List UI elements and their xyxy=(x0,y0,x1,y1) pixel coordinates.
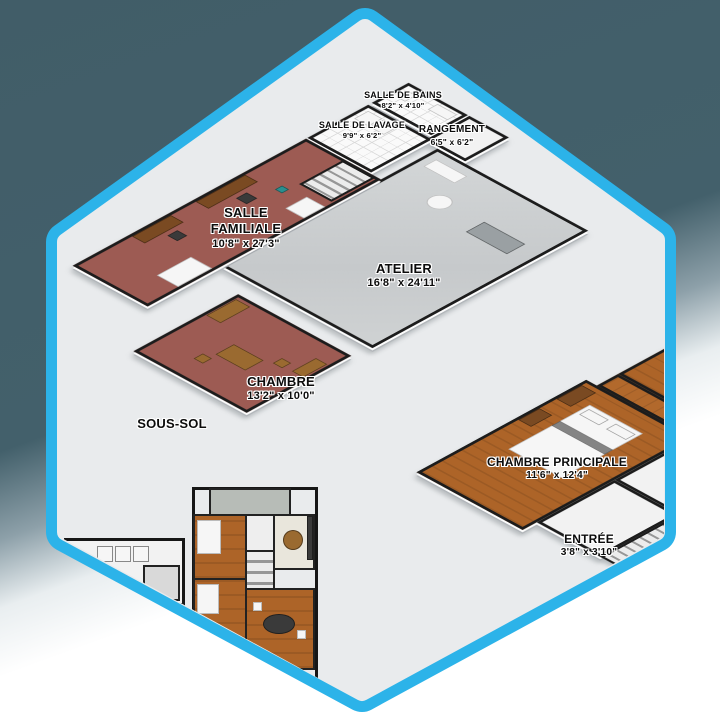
staircase-icon xyxy=(245,550,275,590)
room-name: SALLE DE BAINS xyxy=(364,90,442,101)
room-dims: 3'8" x 3'10" xyxy=(561,547,618,560)
level-label-sous-sol: SOUS-SOL xyxy=(137,416,207,432)
room-label-rangement: RANGEMENT 6'5" x 6'2" xyxy=(419,124,485,147)
room-label-salle-familiale: SALLE FAMILIALE 10'8" x 27'3" xyxy=(212,205,279,251)
oval-table-icon xyxy=(263,614,295,634)
room-dims: 13'2" x 10'0" xyxy=(247,390,315,404)
room-label-atelier: ATELIER 16'8" x 24'11" xyxy=(367,261,440,291)
room-name: SALLE DE LAVAGE xyxy=(319,120,405,131)
washer-icon xyxy=(115,546,131,562)
dining-table-icon xyxy=(283,530,303,550)
room-dims: 8'2" x 4'10" xyxy=(364,101,442,111)
room-dims: 9'9" x 6'2" xyxy=(319,131,405,141)
deck xyxy=(209,488,291,516)
counter-icon xyxy=(307,516,313,560)
room-dims: 11'6" x 12'4" xyxy=(487,470,627,483)
floorplan-image: SALLE DE BAINS 8'2" x 4'10" SALLE DE LAV… xyxy=(0,0,720,720)
room-label-entree: ENTRÉE 3'8" x 3'10" xyxy=(561,532,618,560)
chair-icon xyxy=(253,602,262,611)
room-name: RANGEMENT xyxy=(419,124,485,137)
room-label-salle-de-lavage: SALLE DE LAVAGE 9'9" x 6'2" xyxy=(319,120,405,141)
level-name: SOUS-SOL xyxy=(137,416,207,432)
room-bathroom xyxy=(245,514,275,552)
bed-icon xyxy=(197,584,219,614)
room-label-salle-de-bains: SALLE DE BAINS 8'2" x 4'10" xyxy=(364,90,442,111)
room-name: ATELIER xyxy=(367,261,440,277)
bed-icon xyxy=(197,520,221,554)
room-label-chambre-principale: CHAMBRE PRINCIPALE 11'6" x 12'4" xyxy=(487,455,627,483)
room-dims: 10'8" x 27'3" xyxy=(212,238,279,252)
room-name: SALLE FAMILIALE xyxy=(196,205,296,238)
room-name: ENTRÉE xyxy=(561,532,618,547)
washer-icon xyxy=(133,546,149,562)
room-name: CHAMBRE xyxy=(247,374,315,390)
chair-icon xyxy=(297,630,306,639)
room-label-chambre: CHAMBRE 13'2" x 10'0" xyxy=(247,374,315,404)
room-dims: 6'5" x 6'2" xyxy=(419,137,485,148)
room-name: CHAMBRE PRINCIPALE xyxy=(487,455,627,470)
room-dims: 16'8" x 24'11" xyxy=(367,277,440,291)
